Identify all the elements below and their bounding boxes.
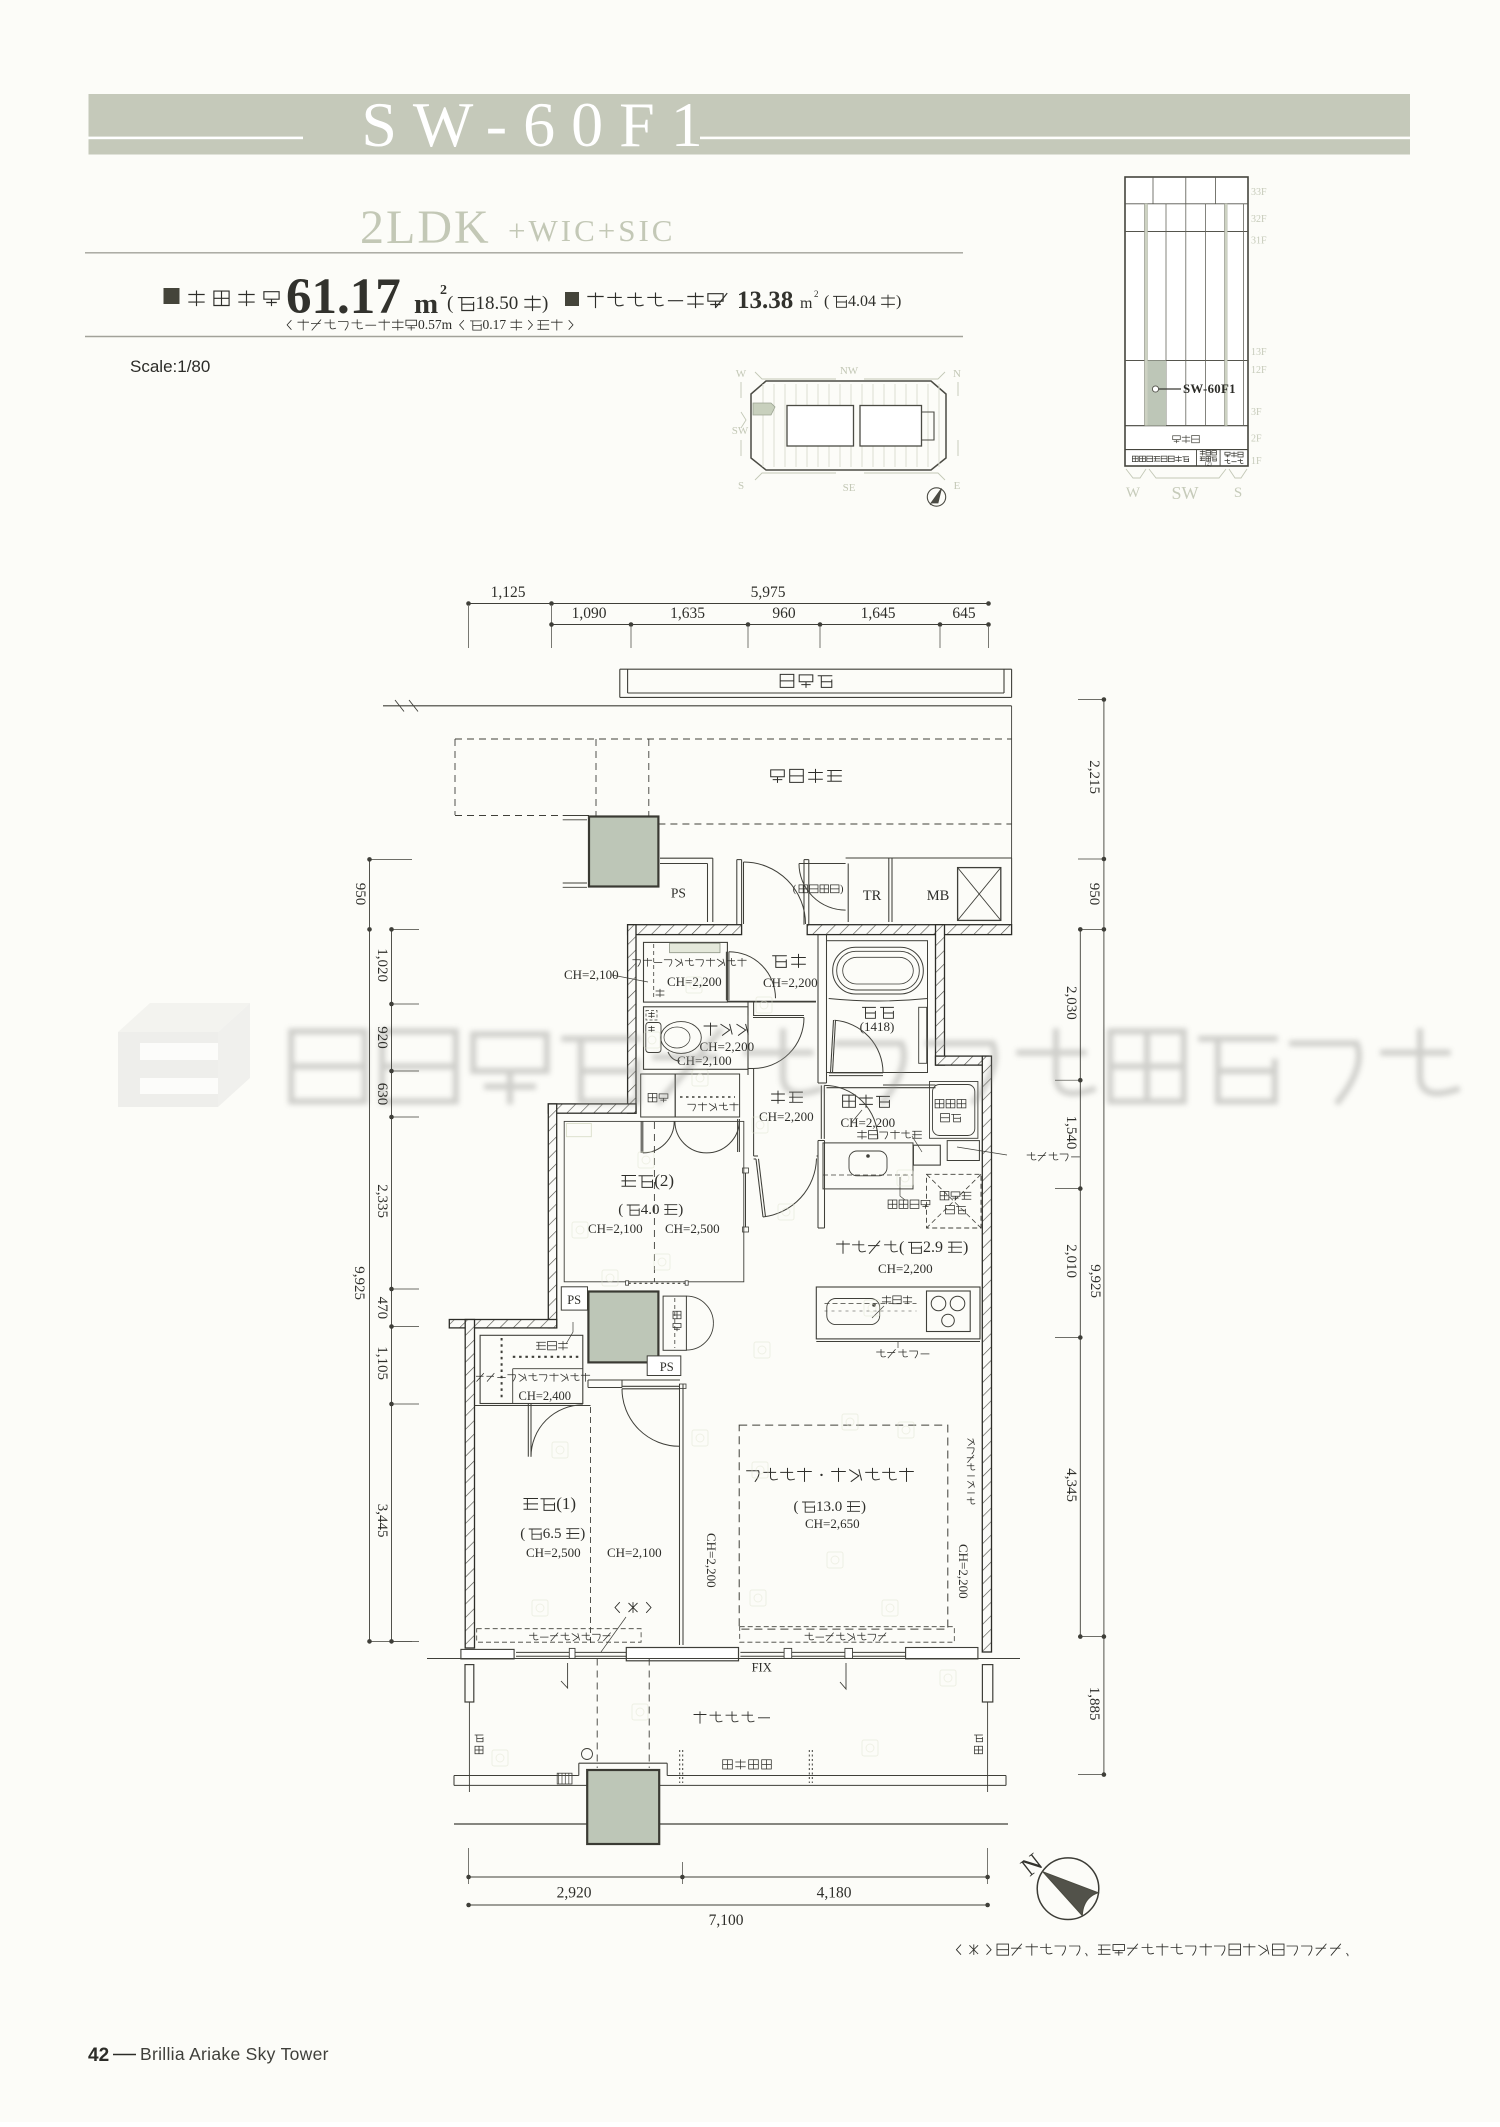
- svg-text:CH=2,100: CH=2,100: [564, 967, 619, 982]
- svg-text:(2): (2): [654, 1171, 674, 1190]
- svg-text:m: m: [414, 288, 438, 320]
- svg-text:920: 920: [374, 1026, 390, 1049]
- svg-text:2,030: 2,030: [1063, 986, 1079, 1020]
- svg-text:Brillia Ariake Sky Tower: Brillia Ariake Sky Tower: [140, 2044, 329, 2064]
- svg-text:2: 2: [440, 283, 447, 298]
- svg-text:645: 645: [952, 605, 976, 622]
- svg-text:W: W: [736, 368, 747, 380]
- svg-text:950: 950: [1086, 883, 1102, 906]
- svg-text:CH=2,200: CH=2,200: [704, 1533, 719, 1588]
- svg-text:0.17: 0.17: [483, 317, 507, 332]
- svg-text:(: (: [899, 1239, 904, 1256]
- svg-text:950: 950: [352, 883, 368, 906]
- svg-text:+WIC+SIC: +WIC+SIC: [508, 213, 675, 248]
- svg-text:SW-60F1: SW-60F1: [361, 89, 718, 160]
- svg-text:2,010: 2,010: [1063, 1244, 1079, 1278]
- svg-text:): ): [840, 884, 844, 895]
- svg-text:2.9: 2.9: [923, 1239, 943, 1256]
- svg-text:33F: 33F: [1251, 187, 1267, 198]
- svg-text:CH=2,500: CH=2,500: [665, 1221, 720, 1236]
- svg-text:): ): [678, 1202, 683, 1218]
- svg-text:): ): [963, 1239, 968, 1256]
- svg-text:13F: 13F: [1251, 347, 1267, 358]
- svg-text:1F: 1F: [1251, 456, 1262, 467]
- svg-text:1,020: 1,020: [374, 948, 390, 982]
- svg-text:): ): [542, 293, 548, 314]
- svg-text:CH=2,100: CH=2,100: [588, 1221, 643, 1236]
- svg-text:E: E: [954, 480, 961, 492]
- svg-text:(1): (1): [556, 1494, 576, 1513]
- svg-text:31F: 31F: [1251, 236, 1267, 247]
- svg-text:CH=2,200: CH=2,200: [763, 975, 818, 990]
- svg-text:2LDK: 2LDK: [360, 201, 491, 254]
- svg-text:PS: PS: [567, 1293, 581, 1307]
- svg-text:CH=2,400: CH=2,400: [519, 1389, 572, 1403]
- svg-text:18.50: 18.50: [476, 293, 519, 314]
- svg-text:4.04: 4.04: [848, 293, 876, 310]
- svg-text:(: (: [794, 1499, 799, 1515]
- svg-text:32F: 32F: [1251, 214, 1267, 225]
- svg-text:1,635: 1,635: [670, 605, 705, 622]
- svg-text:): ): [861, 1499, 866, 1515]
- svg-text:1,885: 1,885: [1086, 1687, 1102, 1721]
- svg-text:SW: SW: [732, 425, 749, 437]
- svg-text:MB: MB: [927, 888, 950, 904]
- svg-text:(2): (2): [1205, 461, 1212, 468]
- svg-text:NW: NW: [840, 365, 859, 377]
- svg-text:1,090: 1,090: [572, 605, 607, 622]
- svg-text:(: (: [793, 884, 797, 895]
- svg-text:SW-60F1: SW-60F1: [1183, 382, 1236, 396]
- svg-text:7,100: 7,100: [709, 1912, 744, 1929]
- svg-text:): ): [896, 293, 901, 310]
- svg-text:CH=2,500: CH=2,500: [526, 1545, 581, 1560]
- svg-text:1,645: 1,645: [861, 605, 896, 622]
- svg-text:1,125: 1,125: [491, 584, 526, 601]
- svg-text:PS: PS: [660, 1360, 674, 1374]
- svg-text:960: 960: [772, 605, 796, 622]
- svg-text:S: S: [738, 480, 744, 492]
- svg-text:0.57m: 0.57m: [418, 317, 453, 332]
- svg-text:S: S: [1234, 485, 1242, 501]
- svg-text:SW: SW: [1172, 483, 1199, 503]
- svg-text:CH=2,200: CH=2,200: [878, 1261, 933, 1276]
- svg-text:(: (: [447, 293, 453, 314]
- svg-text:1,540: 1,540: [1063, 1116, 1079, 1150]
- svg-text:2F: 2F: [1251, 434, 1262, 445]
- svg-text:1,105: 1,105: [374, 1346, 390, 1380]
- svg-text:CH=2,650: CH=2,650: [805, 1516, 860, 1531]
- svg-text:Scale:1/80: Scale:1/80: [130, 357, 210, 376]
- svg-text:TR: TR: [863, 888, 882, 904]
- svg-text:CH=2,200: CH=2,200: [956, 1544, 971, 1599]
- svg-text:(1418): (1418): [860, 1019, 895, 1034]
- svg-text:2,215: 2,215: [1086, 760, 1102, 794]
- svg-text:FIX: FIX: [752, 1661, 772, 1675]
- svg-text:2,335: 2,335: [374, 1184, 390, 1218]
- svg-text:CH=2,200: CH=2,200: [841, 1115, 896, 1130]
- svg-text:(: (: [520, 1526, 525, 1542]
- svg-text:SE: SE: [843, 482, 856, 494]
- svg-text:2,920: 2,920: [557, 1885, 592, 1902]
- svg-text:(: (: [824, 293, 829, 310]
- svg-text:2: 2: [814, 289, 819, 299]
- svg-text:5,975: 5,975: [751, 584, 786, 601]
- svg-text:N: N: [953, 368, 961, 380]
- svg-text:12F: 12F: [1251, 365, 1267, 376]
- svg-text:470: 470: [374, 1297, 390, 1320]
- svg-text:4,345: 4,345: [1063, 1468, 1079, 1502]
- svg-text:13.38: 13.38: [737, 287, 793, 314]
- svg-text:CH=2,200: CH=2,200: [759, 1109, 814, 1124]
- svg-text:9,925: 9,925: [351, 1266, 367, 1300]
- svg-text:9,925: 9,925: [1087, 1264, 1103, 1298]
- svg-text:42: 42: [88, 2045, 109, 2066]
- svg-text:3F: 3F: [1251, 407, 1262, 418]
- svg-text:4,180: 4,180: [817, 1885, 852, 1902]
- svg-text:): ): [580, 1526, 585, 1542]
- svg-text:13.0: 13.0: [816, 1499, 842, 1515]
- svg-text:W: W: [1126, 485, 1141, 501]
- svg-text:4.0: 4.0: [641, 1202, 660, 1218]
- svg-text:m: m: [800, 295, 813, 312]
- svg-text:PS: PS: [671, 886, 686, 901]
- svg-text:CH=2,100: CH=2,100: [607, 1545, 662, 1560]
- svg-text:6.5: 6.5: [543, 1526, 562, 1542]
- svg-text:630: 630: [374, 1083, 390, 1106]
- svg-text:61.17: 61.17: [286, 269, 401, 325]
- svg-text:(: (: [618, 1202, 623, 1218]
- svg-text:3,445: 3,445: [374, 1504, 390, 1538]
